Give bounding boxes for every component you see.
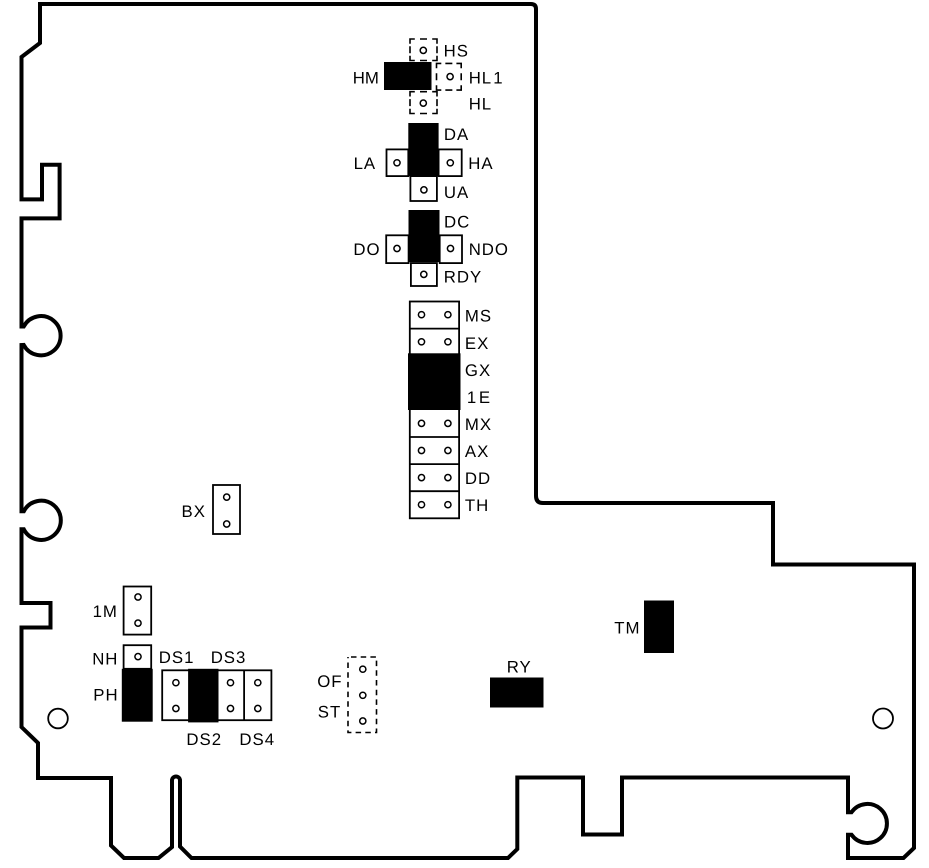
svg-text:DC: DC [444,213,470,232]
svg-text:HS: HS [444,41,469,60]
svg-text:MS: MS [465,307,492,326]
svg-text:DS2: DS2 [186,730,222,749]
svg-text:AX: AX [465,442,489,461]
svg-text:PH: PH [93,686,118,705]
svg-text:NDO: NDO [469,240,509,259]
svg-text:RY: RY [507,658,532,677]
svg-text:TM: TM [614,619,640,638]
svg-text:1M: 1M [93,602,118,621]
svg-text:HM: HM [353,68,379,87]
svg-text:NH: NH [92,649,118,668]
svg-text:DS4: DS4 [239,730,275,749]
svg-text:ST: ST [318,702,341,721]
svg-text:DA: DA [444,125,469,144]
svg-text:GX: GX [465,361,491,380]
svg-text:DS3: DS3 [211,648,247,667]
svg-text:RDY: RDY [444,267,482,286]
svg-text:MX: MX [465,415,492,434]
svg-text:BX: BX [182,502,206,521]
svg-text:LA: LA [354,154,377,173]
svg-text:UA: UA [444,183,469,202]
svg-text:OF: OF [317,672,342,691]
svg-text:EX: EX [465,334,489,353]
svg-text:TH: TH [465,496,489,515]
svg-text:E: E [479,388,491,407]
svg-text:HL: HL [469,95,492,114]
svg-text:HA: HA [468,154,493,173]
svg-text:DO: DO [353,240,380,259]
svg-text:1: 1 [493,69,503,88]
svg-text:HL: HL [469,69,492,88]
svg-text:1: 1 [467,388,477,407]
svg-text:DD: DD [465,469,491,488]
svg-text:DS1: DS1 [159,648,195,667]
